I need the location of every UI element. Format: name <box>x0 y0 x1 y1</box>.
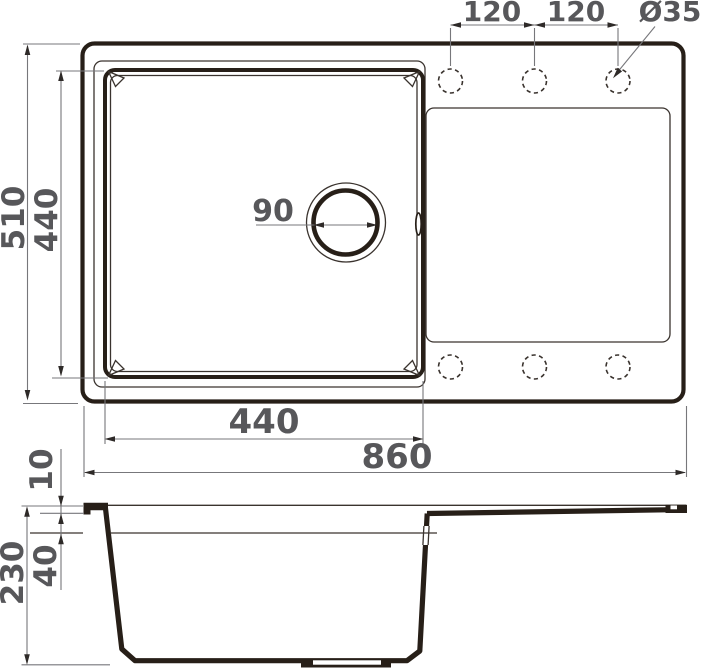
faucet-hole <box>523 355 547 379</box>
bowl-width-dimension: 440 <box>29 71 108 379</box>
faucet-hole <box>606 355 630 379</box>
faucet-hole <box>439 69 463 93</box>
dim-label-bowl-length: 440 <box>229 402 300 442</box>
dim-label-hole-spacing-left: 120 <box>463 0 521 28</box>
bowl-length-dimension: 440 <box>105 381 424 444</box>
arrowhead <box>608 22 619 28</box>
arrowhead <box>58 366 64 377</box>
right-rim-notch <box>671 506 678 510</box>
sink-technical-drawing: 120 120 Ø35 90 510 440 440 <box>0 0 708 671</box>
side-view <box>30 503 687 668</box>
arrowhead <box>25 45 31 56</box>
arrowhead <box>58 71 64 82</box>
sink-outer-edge <box>83 44 684 402</box>
arrowhead <box>24 654 30 665</box>
arrowhead <box>25 390 31 401</box>
dim-label-bowl-width: 440 <box>29 188 65 253</box>
dim-label-ledge-depth: 40 <box>28 544 64 587</box>
dim-label-rim-thickness: 10 <box>24 448 60 491</box>
arrowhead <box>535 22 546 28</box>
faucet-hole <box>439 355 463 379</box>
arrowhead <box>58 534 64 545</box>
faucet-hole <box>523 69 547 93</box>
arrowhead <box>58 514 64 525</box>
hole-diameter-callout: Ø35 <box>613 0 701 78</box>
hole-spacing-dimension: 120 120 <box>451 0 619 66</box>
sink-technical-drawing-page: 120 120 Ø35 90 510 440 440 <box>0 0 708 671</box>
leader-line <box>616 27 655 75</box>
dim-label-hole-spacing-right: 120 <box>547 0 605 28</box>
dim-label-overall-width: 510 <box>0 186 32 251</box>
arrowhead <box>451 22 462 28</box>
rim-and-ledge-dimension: 10 40 <box>24 448 84 590</box>
arrowhead <box>58 496 64 507</box>
dim-label-drain-diameter: 90 <box>252 194 294 229</box>
arrowhead <box>24 506 30 517</box>
arrowhead <box>613 68 622 78</box>
top-view <box>83 44 684 402</box>
faucet-holes <box>439 69 631 379</box>
drain-boss-slot <box>313 660 381 664</box>
drainboard-panel <box>426 108 670 342</box>
drainboard-surface <box>427 510 666 514</box>
arrowhead <box>676 470 687 476</box>
overall-length-dimension: 860 <box>84 406 687 477</box>
drain-outer-circle <box>307 183 386 262</box>
dim-label-hole-diameter: Ø35 <box>639 0 702 28</box>
bowl-section-profile <box>106 509 428 661</box>
arrowhead <box>524 22 535 28</box>
overflow-mark <box>416 213 421 235</box>
dim-label-overall-height: 230 <box>0 541 31 606</box>
arrowhead <box>105 436 116 442</box>
arrowhead <box>84 470 95 476</box>
dim-label-overall-length: 860 <box>362 437 433 477</box>
